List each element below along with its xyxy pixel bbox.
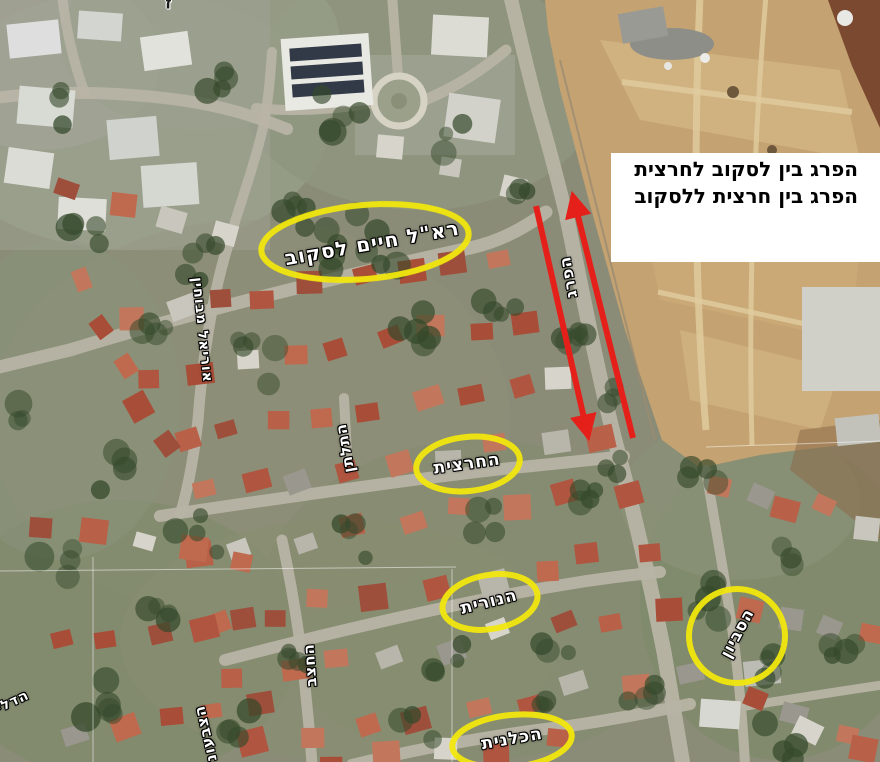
aerial-basemap <box>0 0 880 762</box>
annotation-line-1: הפרג בין לסקוב לחרצית <box>619 156 858 183</box>
annotation-text-box: הפרג בין לסקוב לחרצית הפרג בין חרצית ללס… <box>611 153 880 262</box>
aerial-map-screenshot: רא"ל חיים לסקוב הפרג החרצית הנורית הסביו… <box>0 0 880 762</box>
annotation-line-2: הפרג בין חרצית ללסקוב <box>619 183 858 210</box>
